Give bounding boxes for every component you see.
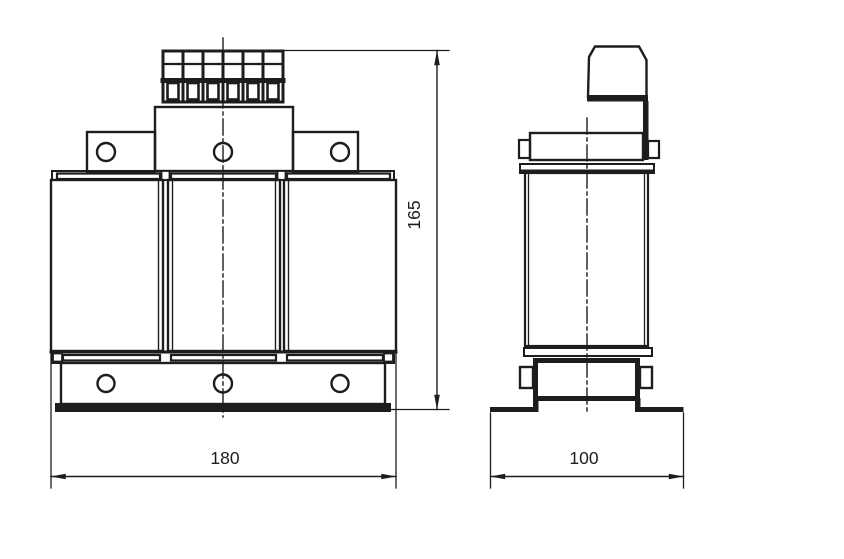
clamp-tab-right xyxy=(640,367,652,388)
terminal-slot xyxy=(188,83,199,100)
mounting-hole-top-left xyxy=(97,143,115,161)
side-view xyxy=(490,47,684,414)
terminal-base-bar xyxy=(587,95,648,102)
plate-gap-block xyxy=(278,171,286,180)
bottom-flange-side xyxy=(524,348,652,356)
clamp-tab-left xyxy=(520,367,533,388)
terminal-block-side xyxy=(588,47,647,97)
cap-tab-left xyxy=(519,140,530,158)
front-width-label: 180 xyxy=(210,448,239,468)
technical-drawing: 180 165 100 xyxy=(0,0,844,559)
top-plate-bar xyxy=(287,174,390,180)
top-plate-bar xyxy=(57,174,160,180)
terminal-bracket-group xyxy=(587,95,649,160)
front-height-label: 165 xyxy=(404,200,424,229)
base-hole-right xyxy=(332,375,349,392)
cap-tab-right xyxy=(648,141,659,158)
bottom-plate-bar xyxy=(63,355,160,361)
drawing-canvas: 180 165 100 xyxy=(0,0,844,559)
coil-right xyxy=(284,180,396,351)
mounting-foot-right xyxy=(635,407,684,412)
dimension-labels: 180 165 100 xyxy=(210,200,598,468)
terminal-slot xyxy=(228,83,239,100)
terminal-slot xyxy=(208,83,219,100)
terminal-slot xyxy=(168,83,179,100)
plate-end-block xyxy=(384,354,393,362)
mounting-hole-top-right xyxy=(331,143,349,161)
bottom-plate-bar xyxy=(287,355,383,361)
front-view xyxy=(51,38,396,417)
coil-left xyxy=(51,180,163,351)
plate-end-block xyxy=(53,354,62,362)
drawing-root: 180 165 100 xyxy=(51,38,684,488)
plate-gap-block xyxy=(162,171,170,180)
side-width-label: 100 xyxy=(569,448,598,468)
mounting-foot-left xyxy=(490,407,538,412)
terminal-slot xyxy=(248,83,259,100)
coil-center xyxy=(168,180,280,351)
terminal-slot xyxy=(268,83,279,100)
base-hole-left xyxy=(98,375,115,392)
